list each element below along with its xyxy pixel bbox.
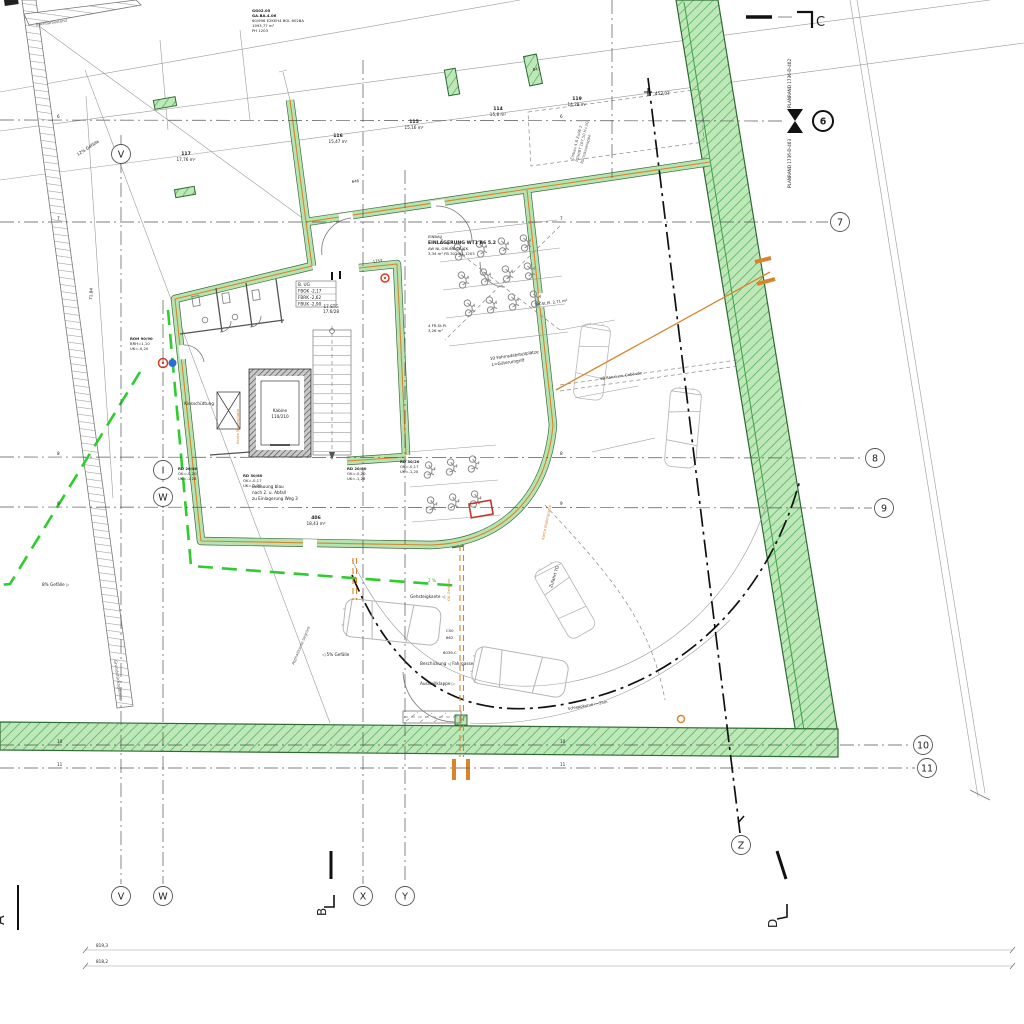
svg-text:6: 6 <box>57 114 60 119</box>
section-a: A <box>0 885 18 930</box>
matchline-labels: PLANRAND 1736-D-402 PLANRAND 1736-D-403 <box>787 59 792 188</box>
schleppkurve <box>545 505 665 700</box>
section-b-label: B <box>315 908 329 916</box>
svg-text:7: 7 <box>57 216 60 221</box>
elevator-label: Kabine <box>273 408 288 413</box>
matchline-label-lower: PLANRAND 1736-D-403 <box>787 139 792 188</box>
svg-text:11: 11 <box>560 762 566 767</box>
svg-text:15,8 m²: 15,8 m² <box>490 112 507 117</box>
svg-text:18,43 m²: 18,43 m² <box>306 521 325 526</box>
grid-bubble-i: I <box>162 466 165 477</box>
matchline-label-upper: PLANRAND 1736-D-402 <box>787 59 792 108</box>
svg-text:17,6/28: 17,6/28 <box>323 309 339 314</box>
dim-646: 646 <box>351 178 359 184</box>
existing-wall-bands <box>4 0 141 708</box>
car <box>469 645 570 698</box>
section-d: D <box>766 851 787 928</box>
svg-text:C50: C50 <box>446 628 454 633</box>
dim-total-1: 819,3 <box>96 943 108 948</box>
section-d-label: D <box>766 919 780 928</box>
car <box>573 321 612 400</box>
blue-survey-marker <box>169 359 177 367</box>
car <box>664 386 702 469</box>
svg-text:15,47 m²: 15,47 m² <box>328 139 347 144</box>
svg-text:Kante Bodenplatte: Kante Bodenplatte <box>235 408 240 444</box>
pier <box>153 97 176 110</box>
svg-text:Kante Bodenplatte: Kante Bodenplatte <box>540 504 552 540</box>
svg-text:2 %: 2 % <box>428 578 436 583</box>
svg-text:B. UG: B. UG <box>298 282 310 287</box>
orange-survey-marker <box>678 716 685 723</box>
driveway-and-parking <box>340 320 800 723</box>
svg-text:EINBAU: EINBAU <box>428 234 443 239</box>
grid-bubble-8: 8 <box>872 454 878 465</box>
grid-bubble-7: 7 <box>837 218 843 229</box>
svg-text:FBOK -2,17: FBOK -2,17 <box>298 289 322 294</box>
svg-text:Schleppkurve r=25m: Schleppkurve r=25m <box>567 699 608 711</box>
green-band-east <box>676 0 838 740</box>
svg-text:110/210: 110/210 <box>271 414 289 419</box>
red-opening-rect <box>469 500 493 518</box>
grid-bubble-w: W <box>158 892 168 903</box>
svg-text:UK=-1,20: UK=-1,20 <box>400 469 419 474</box>
green-band-south <box>0 722 838 757</box>
grid-bubble-11: 11 <box>921 764 933 775</box>
curb-corner-arc <box>403 672 455 722</box>
grid-bubble-10: 10 <box>917 741 929 752</box>
svg-text:862: 862 <box>446 635 454 640</box>
svg-text:Gehsteigkante ◁: Gehsteigkante ◁ <box>410 594 446 599</box>
svg-text:9: 9 <box>560 501 563 506</box>
orange-tick <box>466 759 470 780</box>
svg-text:17,76 m²: 17,76 m² <box>176 157 195 162</box>
svg-text:UK=-1,20: UK=-1,20 <box>243 483 262 488</box>
svg-text:Asphaltkante begrünt: Asphaltkante begrünt <box>290 625 311 665</box>
grid-bubble-v-top: V <box>118 150 125 161</box>
kies-label: Kiesschüttung <box>184 401 214 406</box>
bike-storage-upper <box>437 220 568 346</box>
boundary-wall-west <box>22 0 133 708</box>
svg-text:◁ 5% Gefälle: ◁ 5% Gefälle <box>322 652 350 657</box>
green-band-east-inner-line <box>684 2 805 736</box>
svg-text:6039-C: 6039-C <box>443 650 457 655</box>
svg-text:9: 9 <box>57 501 60 506</box>
orange-tick <box>452 759 456 780</box>
section-a-label: A <box>0 915 8 925</box>
grid-bubble-z: Z <box>738 841 745 852</box>
svg-text:UK=-0,20: UK=-0,20 <box>130 346 149 351</box>
elevator-shaft <box>249 369 311 457</box>
pier <box>174 186 195 197</box>
svg-text:3,26 m²: 3,26 m² <box>428 328 443 333</box>
svg-text:15,16 m²: 15,16 m² <box>404 125 423 130</box>
point-markers <box>159 274 685 723</box>
grid-bubble-x: X <box>360 892 367 903</box>
svg-text:10: 10 <box>57 739 63 744</box>
grid-bubble-v: V <box>118 892 125 903</box>
svg-text:FBUK -2,90: FBUK -2,90 <box>298 302 322 307</box>
spot-height: 452,07 <box>655 91 670 96</box>
svg-text:8: 8 <box>57 451 60 456</box>
title-note-block: GG02.05 GA.BA.4.06 60/996 E2KEH4 BGL 602… <box>252 8 304 33</box>
dashed-parcel-box <box>528 89 704 166</box>
wall-openings <box>178 199 549 549</box>
svg-text:8% Gefälle ▷: 8% Gefälle ▷ <box>42 582 70 587</box>
dim-left: 71,84 <box>88 287 94 300</box>
pier <box>444 68 459 96</box>
svg-text:6: 6 <box>560 114 563 119</box>
svg-text:8: 8 <box>560 451 563 456</box>
bike-storage-lower <box>408 445 500 522</box>
wall-corner-mark <box>4 0 19 6</box>
orange-elements <box>353 258 775 780</box>
grid-bubble-w-mid: W <box>158 493 168 504</box>
grid-bubble-9: 9 <box>881 504 887 515</box>
section-c-label: C <box>816 15 825 30</box>
svg-text:7: 7 <box>560 216 563 221</box>
svg-text:Ausstellklappe ▷: Ausstellklappe ▷ <box>420 681 456 686</box>
svg-text:UK=-1,28: UK=-1,28 <box>178 476 197 481</box>
grid-bubble-y: Y <box>401 892 408 903</box>
matchline-bowtie <box>787 109 803 121</box>
site-plan-drawing: 66 77 88 99 1010 1111 6 7 8 9 10 11 V I … <box>0 0 1024 1024</box>
stairs <box>313 326 351 460</box>
svg-text:FBRK -2,62: FBRK -2,62 <box>298 295 321 300</box>
svg-text:12% Gefälle: 12% Gefälle <box>76 139 100 157</box>
svg-text:10: 10 <box>560 739 566 744</box>
svg-text:UK=-1,28: UK=-1,28 <box>347 476 366 481</box>
svg-text:OK Gelände: OK Gelände <box>446 578 451 601</box>
car <box>532 558 598 641</box>
svg-text:zu Einlagerung Weg 3: zu Einlagerung Weg 3 <box>252 496 298 501</box>
svg-text:11: 11 <box>57 762 63 767</box>
svg-text:14,28 m²: 14,28 m² <box>567 102 586 107</box>
svg-text:nach 2. u. Abfall: nach 2. u. Abfall <box>252 490 286 495</box>
grid-bubble-6: 6 <box>820 117 827 128</box>
svg-text:Beschickung ◁ Fahrgasse: Beschickung ◁ Fahrgasse <box>420 661 474 666</box>
svg-text:3,34 m² FB 302 H1 1203: 3,34 m² FB 302 H1 1203 <box>428 251 475 256</box>
dim-total-2: 818,2 <box>96 959 108 964</box>
section-b: B <box>315 851 334 916</box>
svg-text:PH 1203: PH 1203 <box>252 28 269 33</box>
